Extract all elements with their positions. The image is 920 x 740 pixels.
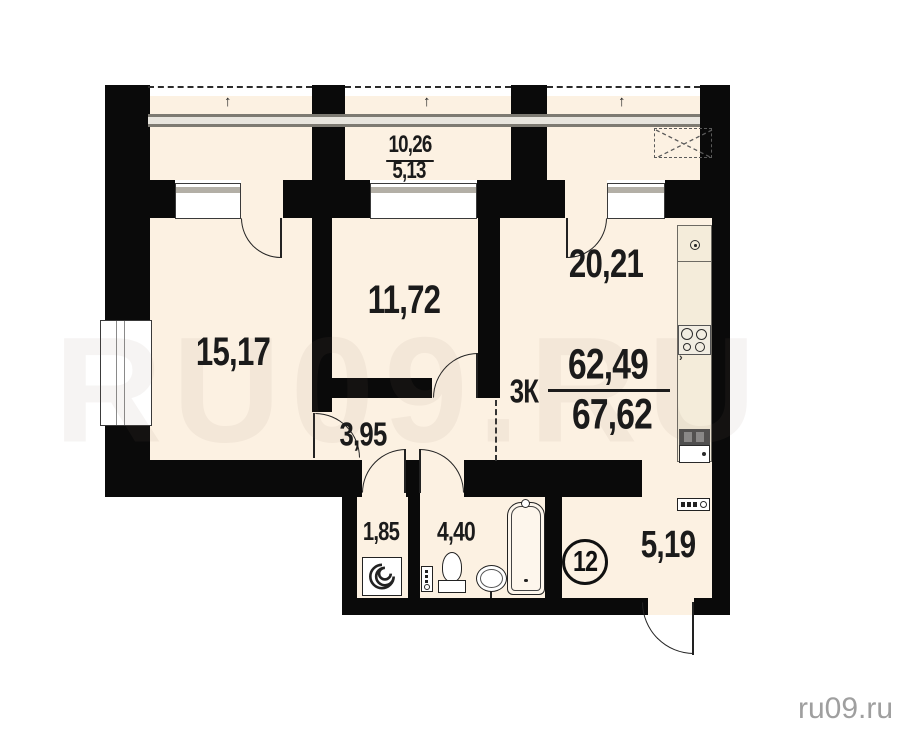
washbasin-icon [476, 565, 507, 593]
bathtub-icon [507, 502, 545, 595]
wall-balcony-pier-1 [312, 85, 345, 180]
opening-balcony-door-room3 [565, 180, 607, 218]
door-leaf-entrance [692, 602, 694, 655]
stove-icon [678, 325, 711, 355]
wall-wc-left [342, 460, 357, 615]
window-sill [371, 187, 476, 193]
watermark-small: ru09.ru [798, 692, 893, 726]
door-leaf-room2-hall [476, 353, 478, 398]
door-leaf-hall-bath [419, 449, 421, 493]
open-passage-dashed-line [495, 400, 497, 461]
counter-chevron: › [679, 352, 683, 364]
wall-left-outer [105, 85, 150, 497]
living-area-label: 62,49 [568, 344, 648, 387]
balcony-window-room2 [370, 183, 477, 219]
wall-bottom-main-left [105, 460, 362, 497]
window-open-arrow-3: ↑ [618, 94, 626, 109]
wall-balcony-seg-d [665, 180, 730, 218]
balcony-half-label: 5,13 [392, 159, 425, 183]
balcony-total-label: 10,26 [386, 133, 434, 157]
balcony-glazing-1 [148, 86, 312, 88]
door-leaf-balcony-room3 [566, 218, 568, 258]
window-sill [176, 187, 240, 193]
wall-room2-hall [332, 378, 432, 398]
kitchen-living-area-label: 20,21 [569, 244, 643, 284]
corridor-area-label: 5,19 [641, 526, 696, 564]
washing-machine-icon [362, 557, 402, 596]
wall-right-outer [712, 85, 730, 615]
total-area-label: 67,62 [572, 394, 652, 437]
wall-bottom-outer-left [342, 598, 648, 615]
apartment-type-label: 3К [510, 375, 538, 408]
balcony-parapet [148, 114, 700, 127]
wall-wc-bath [408, 497, 420, 598]
room1-side-window [100, 320, 152, 426]
balcony-window-room1 [175, 183, 241, 219]
wall-balcony-seg-a [150, 180, 175, 218]
wall-bottom-outer-right [694, 598, 730, 615]
unit-number-badge: 12 [562, 539, 608, 585]
wall-bath-right [545, 497, 562, 598]
corridor-passage-floor [642, 463, 712, 497]
toilet-icon [438, 552, 466, 595]
balcony-glazing-3 [547, 86, 700, 88]
room1-area-label: 15,17 [196, 332, 270, 372]
door-arc-entrance [642, 602, 694, 654]
kitchen-sink-basin [679, 445, 710, 463]
room2-area-label: 11,72 [368, 280, 440, 320]
window-sill [608, 187, 664, 193]
kitchen-sink-drainer [679, 429, 710, 445]
wall-bottom-main-post [406, 460, 420, 497]
hall-area-label: 3,95 [340, 418, 387, 451]
window-open-arrow-1: ↑ [224, 94, 232, 109]
door-leaf-balcony-room1 [280, 218, 282, 258]
balcony-glazing-2 [345, 86, 511, 88]
wc-area-label: 1,85 [363, 518, 399, 544]
vent-icon [690, 240, 700, 250]
door-leaf-room1-hall [313, 413, 315, 458]
wall-balcony-pier-2 [511, 85, 547, 180]
window-open-arrow-2: ↑ [423, 94, 431, 109]
kitchen-cabinet [677, 228, 712, 262]
water-riser-icon [421, 566, 433, 592]
floor-plan: ↑ ↑ ↑ [0, 0, 920, 740]
ac-unit-placeholder-icon [654, 128, 712, 158]
balcony-window-room3 [607, 183, 665, 219]
bathroom-area-label: 4,40 [437, 519, 475, 546]
door-leaf-hall-wc [404, 449, 406, 493]
wall-bottom-main-right [464, 460, 642, 497]
window-pane [116, 321, 125, 425]
opening-balcony-door-room1 [241, 180, 283, 218]
unit-number: 12 [573, 546, 597, 579]
electrical-panel-icon [677, 498, 710, 511]
wall-room1-room2 [312, 180, 332, 412]
wall-room2-room3 [478, 180, 500, 398]
